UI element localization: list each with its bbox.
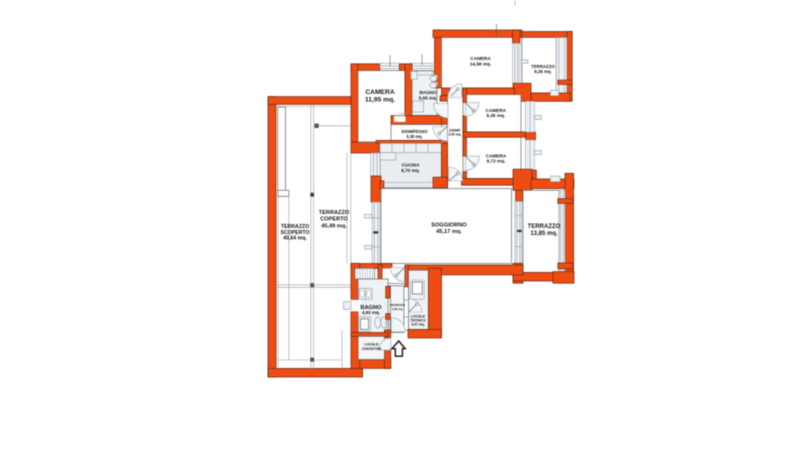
svg-text:SOGGIORNO: SOGGIORNO (431, 222, 467, 228)
svg-text:TERRAZZO: TERRAZZO (528, 224, 561, 230)
svg-text:9,36 mq.: 9,36 mq. (486, 113, 505, 118)
svg-text:COPERTO: COPERTO (320, 217, 348, 223)
svg-text:45,49 mq.: 45,49 mq. (321, 223, 347, 229)
svg-text:TERRAZZO: TERRAZZO (319, 210, 350, 216)
svg-text:3,38 mq.: 3,38 mq. (406, 134, 422, 139)
svg-text:45,17 mq.: 45,17 mq. (436, 229, 462, 235)
svg-text:3,05 mq.: 3,05 mq. (449, 133, 462, 137)
svg-text:14,58 mq.: 14,58 mq. (470, 62, 491, 67)
svg-text:40,64 mq.: 40,64 mq. (283, 236, 307, 242)
svg-text:13,85 mq.: 13,85 mq. (530, 231, 558, 237)
svg-text:3,36 mq.: 3,36 mq. (392, 307, 403, 311)
svg-text:CAMERA: CAMERA (470, 56, 491, 61)
svg-text:9,72 mq.: 9,72 mq. (487, 159, 506, 164)
svg-text:8,70 mq.: 8,70 mq. (401, 168, 419, 173)
svg-text:4,47 mq.: 4,47 mq. (411, 323, 425, 327)
svg-text:4,92 mq.: 4,92 mq. (362, 310, 380, 315)
svg-text:11,95 mq.: 11,95 mq. (365, 96, 395, 103)
svg-text:CONTATORI: CONTATORI (362, 347, 382, 351)
svg-text:TERRAZZO: TERRAZZO (531, 64, 555, 69)
svg-text:BAGNO: BAGNO (419, 90, 437, 95)
svg-text:9,26 mq.: 9,26 mq. (534, 69, 552, 74)
svg-text:CAMERA: CAMERA (365, 89, 395, 96)
svg-text:CUCINA: CUCINA (402, 163, 421, 168)
svg-text:5,55 mq.: 5,55 mq. (419, 95, 437, 100)
